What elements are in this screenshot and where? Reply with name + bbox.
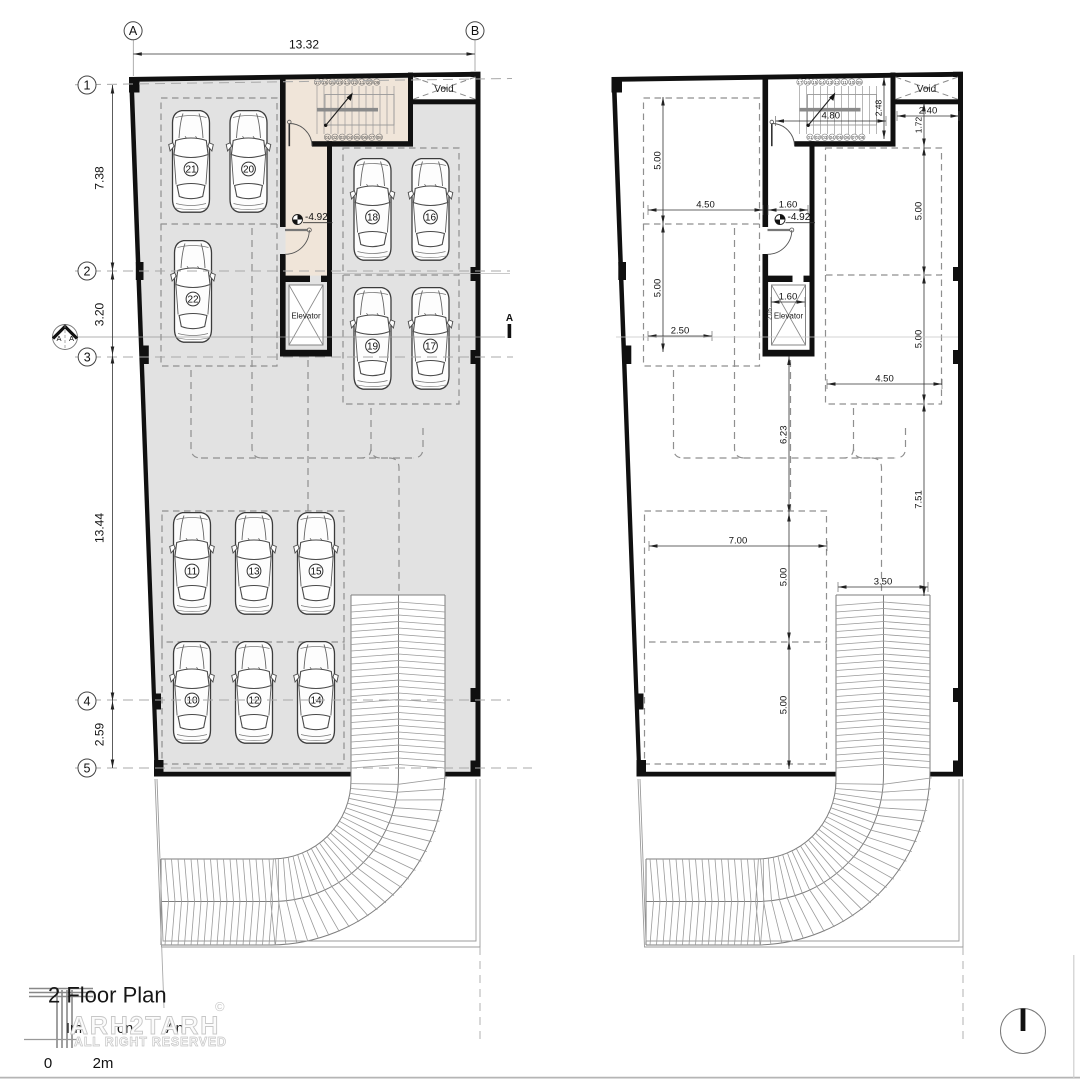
svg-text:Elevator: Elevator — [774, 312, 804, 321]
svg-text:5.00: 5.00 — [914, 330, 925, 349]
svg-text:4.50: 4.50 — [696, 200, 715, 211]
svg-text:2.59: 2.59 — [93, 722, 107, 746]
svg-text:13.44: 13.44 — [93, 513, 107, 543]
svg-text:3: 3 — [84, 350, 91, 364]
svg-text:09: 09 — [857, 80, 863, 85]
svg-text:1.72: 1.72 — [914, 116, 924, 133]
svg-text:2.05: 2.05 — [768, 308, 774, 320]
svg-text:4.80: 4.80 — [822, 111, 841, 122]
svg-text:11: 11 — [842, 80, 847, 85]
svg-text:A: A — [129, 24, 138, 38]
svg-text:17: 17 — [797, 80, 803, 85]
svg-text:2m: 2m — [93, 1055, 114, 1072]
svg-text:16: 16 — [322, 80, 328, 85]
svg-text:2.40: 2.40 — [919, 106, 938, 117]
svg-text:-4.92: -4.92 — [788, 212, 811, 223]
svg-text:15: 15 — [812, 80, 818, 85]
svg-text:A: A — [506, 313, 513, 324]
svg-text:2.48: 2.48 — [874, 99, 884, 116]
svg-text:Elevator: Elevator — [291, 312, 321, 321]
svg-text:08: 08 — [377, 135, 383, 140]
svg-text:01: 01 — [325, 135, 331, 140]
svg-text:5.00: 5.00 — [653, 151, 664, 170]
svg-text:10: 10 — [849, 80, 855, 85]
svg-text:7.38: 7.38 — [93, 166, 107, 190]
svg-text:04: 04 — [830, 135, 836, 140]
svg-text:20: 20 — [243, 165, 255, 176]
svg-text:4: 4 — [84, 694, 91, 708]
svg-text:19: 19 — [367, 342, 379, 353]
svg-text:Void: Void — [917, 84, 936, 95]
svg-text:13: 13 — [827, 80, 833, 85]
svg-text:07: 07 — [852, 135, 858, 140]
svg-text:05: 05 — [355, 135, 361, 140]
svg-text:22: 22 — [187, 295, 199, 306]
svg-text:16: 16 — [425, 213, 437, 224]
svg-text:02: 02 — [332, 135, 338, 140]
svg-text:Void: Void — [434, 84, 453, 95]
svg-text:-4.92: -4.92 — [305, 212, 328, 223]
svg-text:06: 06 — [844, 135, 850, 140]
svg-text:08: 08 — [859, 135, 865, 140]
svg-text:10: 10 — [186, 696, 198, 707]
svg-text:5.00: 5.00 — [653, 279, 664, 298]
svg-text:A: A — [69, 334, 74, 343]
svg-text:12: 12 — [834, 80, 840, 85]
svg-text:04: 04 — [347, 135, 353, 140]
svg-text:07: 07 — [369, 135, 375, 140]
svg-text:15: 15 — [330, 80, 336, 85]
svg-text:B: B — [471, 24, 479, 38]
svg-text:6.23: 6.23 — [779, 426, 790, 445]
svg-text:0: 0 — [44, 1055, 52, 1072]
svg-text:A: A — [56, 334, 61, 343]
svg-text:4.50: 4.50 — [875, 374, 894, 385]
svg-text:14: 14 — [820, 80, 826, 85]
svg-text:18: 18 — [367, 213, 379, 224]
svg-text:13: 13 — [248, 567, 260, 578]
svg-text:2 Floor Plan: 2 Floor Plan — [48, 983, 167, 1008]
svg-text:17: 17 — [425, 342, 437, 353]
svg-text:06: 06 — [362, 135, 368, 140]
svg-text:21: 21 — [185, 165, 197, 176]
svg-text:1.60: 1.60 — [779, 200, 798, 211]
svg-text:01: 01 — [807, 135, 813, 140]
svg-text:15: 15 — [310, 567, 322, 578]
svg-text:3.20: 3.20 — [93, 302, 107, 326]
svg-text:17: 17 — [315, 80, 321, 85]
svg-text:1.60: 1.60 — [779, 292, 798, 303]
svg-text:14: 14 — [310, 696, 322, 707]
svg-text:02: 02 — [815, 135, 821, 140]
svg-text:05: 05 — [837, 135, 843, 140]
svg-text:7.00: 7.00 — [729, 536, 748, 547]
svg-text:ALL RIGHT RESERVED: ALL RIGHT RESERVED — [74, 1035, 227, 1049]
svg-text:09: 09 — [374, 80, 380, 85]
svg-text:5.00: 5.00 — [779, 568, 790, 587]
svg-text:1: 1 — [84, 78, 91, 92]
svg-text:12: 12 — [248, 696, 260, 707]
svg-text:©: © — [215, 999, 225, 1014]
svg-text:2: 2 — [84, 264, 91, 278]
svg-text:13.32: 13.32 — [289, 38, 319, 52]
svg-text:2.50: 2.50 — [671, 326, 690, 337]
svg-text:5.00: 5.00 — [779, 696, 790, 715]
svg-text:03: 03 — [340, 135, 346, 140]
svg-text:5: 5 — [84, 761, 91, 775]
svg-text:3.50: 3.50 — [874, 577, 893, 588]
svg-text:16: 16 — [805, 80, 811, 85]
svg-text:03: 03 — [822, 135, 828, 140]
svg-text:11: 11 — [187, 567, 198, 578]
svg-text:5.00: 5.00 — [914, 202, 925, 221]
svg-text:7.51: 7.51 — [914, 490, 925, 509]
